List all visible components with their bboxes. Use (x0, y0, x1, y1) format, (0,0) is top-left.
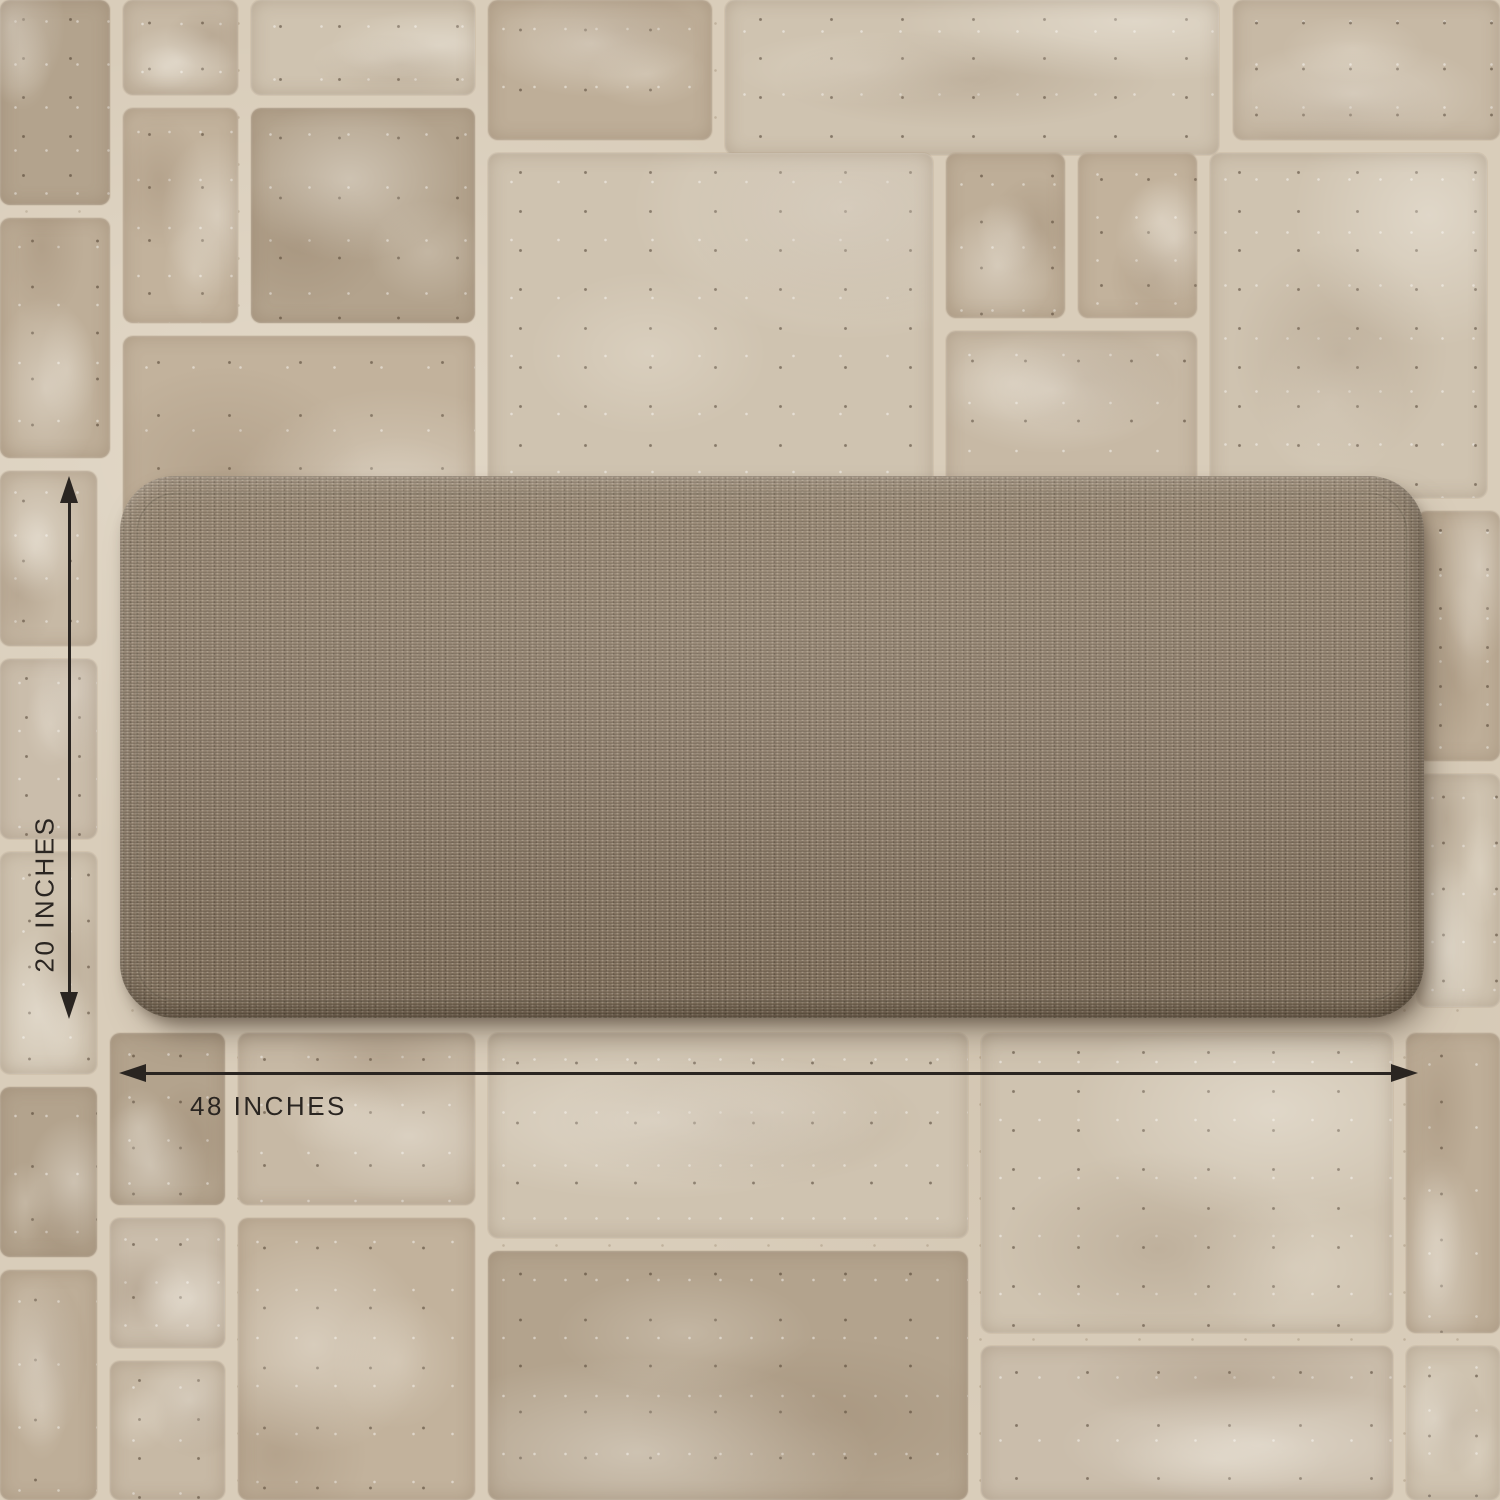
height-dimension-line (68, 498, 71, 998)
floor-tile (488, 0, 712, 140)
product-photo-scene: 20 INCHES 48 INCHES (0, 0, 1500, 1500)
floor-tile (0, 0, 110, 205)
width-dimension-line (144, 1072, 1394, 1075)
floor-tile (725, 0, 1219, 155)
floor-tile (251, 108, 475, 323)
floor-tile (1417, 511, 1500, 761)
floor-tile (123, 108, 238, 323)
floor-tile (123, 0, 238, 95)
floor-tile (1417, 774, 1500, 1007)
floor-tile (1078, 153, 1197, 318)
arrow-up-icon (60, 476, 78, 503)
floor-tile (110, 1361, 225, 1500)
width-dimension-label: 48 INCHES (190, 1091, 347, 1122)
floor-tile (488, 153, 933, 498)
floor-tile (1233, 0, 1500, 140)
floor-tile (946, 153, 1065, 318)
floor-tile (488, 1251, 968, 1500)
arrow-down-icon (60, 992, 78, 1019)
floor-tile (110, 1218, 225, 1348)
floor-tile (0, 1270, 97, 1500)
mat-bevel-edge (138, 494, 1406, 1000)
floor-tile (0, 218, 110, 458)
floor-tile (251, 0, 475, 95)
floor-tile (488, 1033, 968, 1238)
floor-tile (1406, 1346, 1500, 1500)
floor-tile (0, 471, 97, 646)
floor-tile (238, 1218, 475, 1500)
anti-fatigue-mat (120, 476, 1424, 1018)
floor-tile (1406, 1033, 1500, 1333)
height-dimension-label: 20 INCHES (30, 816, 61, 973)
floor-tile (946, 331, 1197, 498)
floor-tile (0, 659, 97, 839)
floor-tile (981, 1346, 1393, 1500)
arrow-left-icon (119, 1064, 146, 1082)
floor-tile (981, 1033, 1393, 1333)
floor-tile (1210, 153, 1487, 498)
floor-tile (0, 1087, 97, 1257)
arrow-right-icon (1391, 1064, 1418, 1082)
